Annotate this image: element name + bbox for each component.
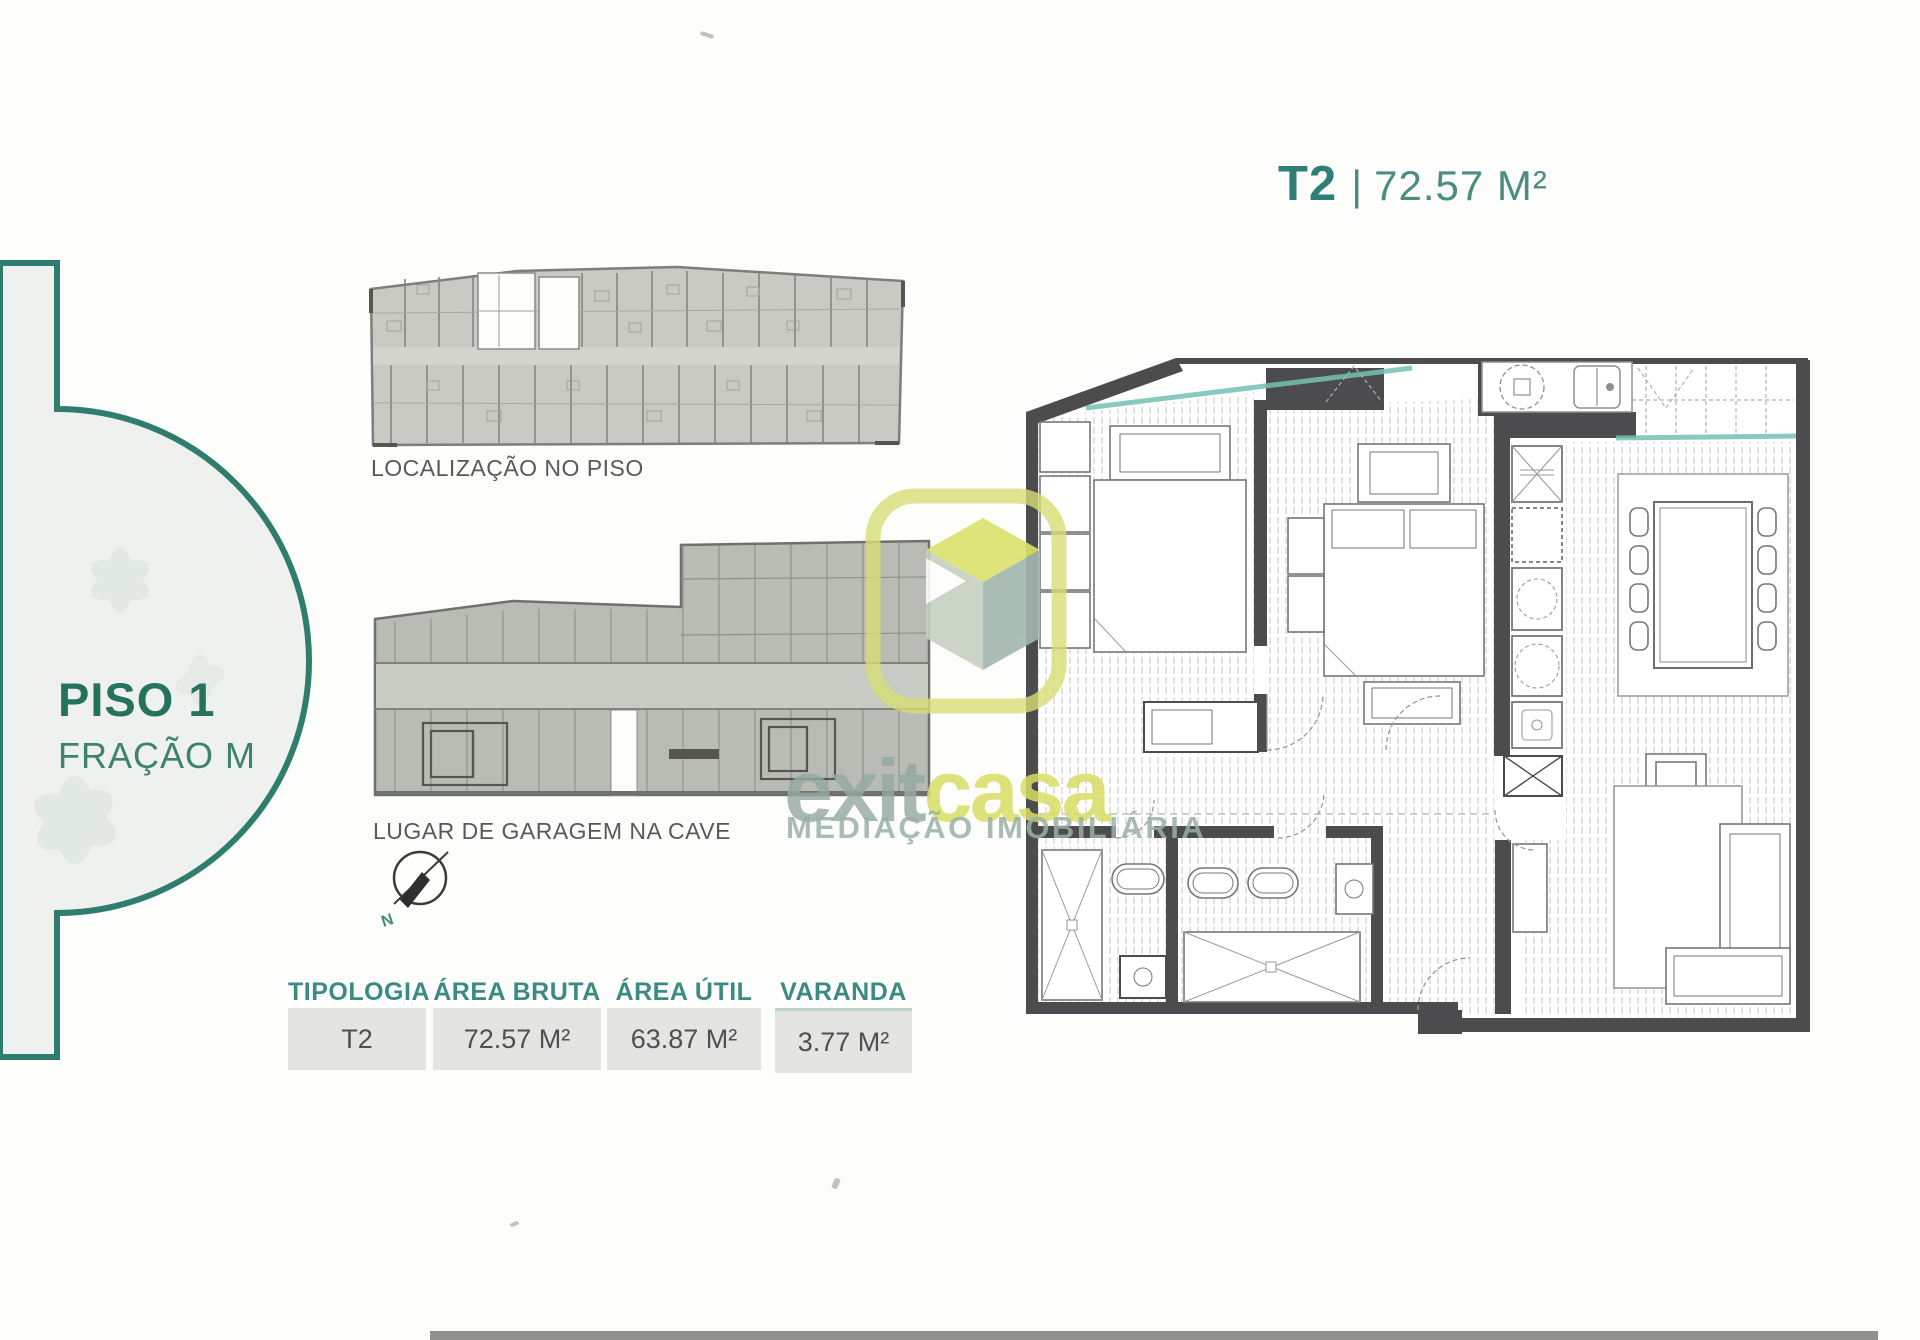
next-page-edge (430, 1331, 1878, 1340)
title-separator: | (1351, 162, 1362, 210)
floor-badge: PISO 1 FRAÇÃO M (58, 672, 298, 777)
brochure-page: PISO 1 FRAÇÃO M T2 | 72.57 M² (0, 0, 1920, 1340)
compass-icon: N (378, 840, 462, 932)
floor-badge-shape (0, 250, 330, 1070)
fraction-label: FRAÇÃO M (58, 735, 298, 777)
col-header-area-util: ÁREA ÚTIL (607, 978, 761, 1007)
garage-plan (373, 527, 933, 812)
location-plan (367, 261, 907, 451)
floor-label: PISO 1 (58, 672, 298, 727)
gross-area: 72.57 M² (1374, 162, 1548, 210)
scan-speck (831, 1177, 841, 1189)
garage-highlight-slot (611, 710, 637, 795)
bathroom-2 (1184, 864, 1373, 1002)
unit-type: T2 (1278, 156, 1337, 212)
col-header-tipologia: TIPOLOGIA (288, 978, 426, 1007)
apartment-floor-plan (1026, 358, 1816, 1038)
kitchen-appliance-column (1512, 446, 1562, 748)
col-header-area-bruta: ÁREA BRUTA (433, 978, 601, 1007)
scan-speck (700, 31, 715, 39)
value-area-bruta: 72.57 M² (433, 1008, 601, 1070)
value-tipologia: T2 (288, 1008, 426, 1070)
compass-north-label: N (379, 911, 395, 931)
location-plan-label: LOCALIZAÇÃO NO PISO (371, 455, 644, 482)
value-area-util: 63.87 M² (607, 1008, 761, 1070)
col-header-varanda: VARANDA (775, 978, 912, 1007)
highlighted-unit-2 (539, 277, 579, 349)
page-title: T2 | 72.57 M² (1278, 156, 1578, 212)
scan-speck (510, 1221, 520, 1228)
value-varanda: 3.77 M² (775, 1008, 912, 1073)
dining-area (1618, 474, 1788, 696)
